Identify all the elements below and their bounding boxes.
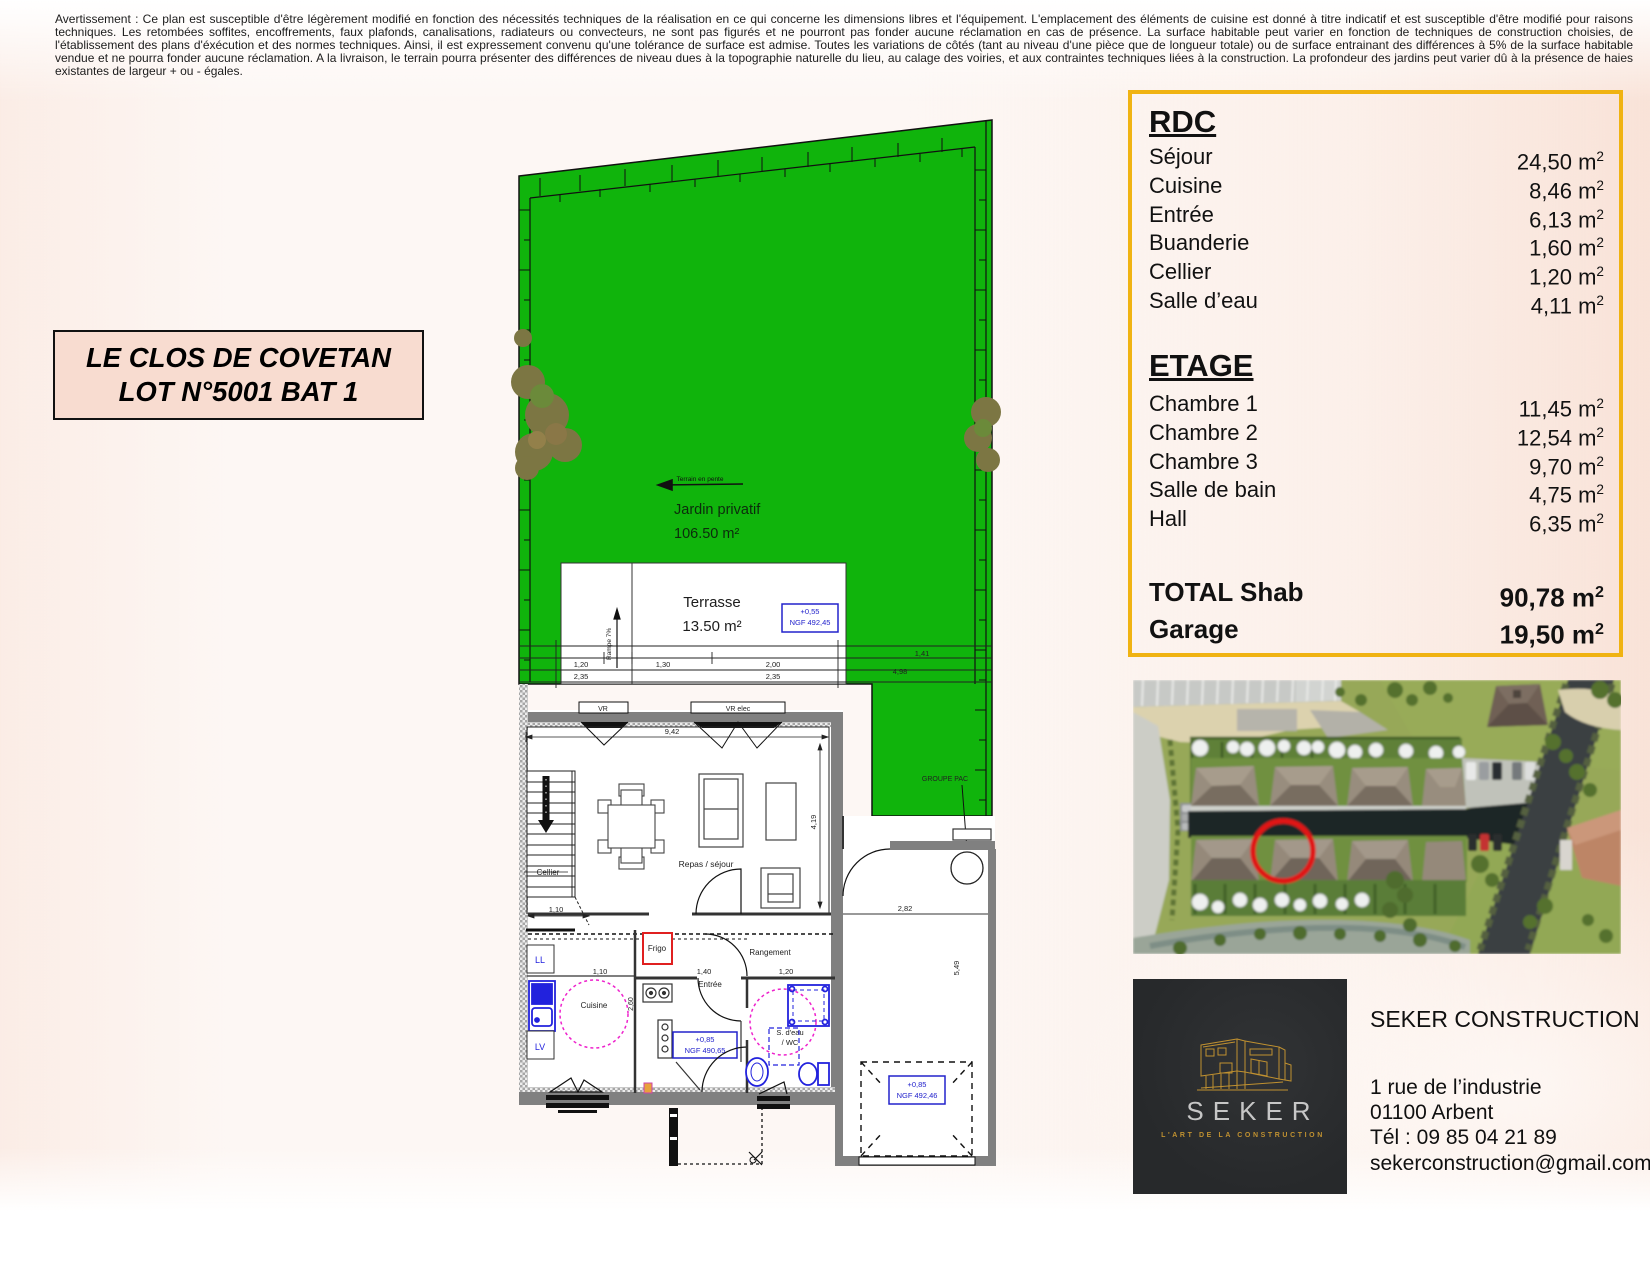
svg-text:LL: LL: [535, 955, 545, 965]
svg-text:Terrain en pente: Terrain en pente: [677, 476, 724, 483]
svg-text:1,40: 1,40: [697, 967, 712, 976]
svg-text:9,42: 9,42: [665, 727, 680, 736]
svg-text:Cuisine: Cuisine: [581, 1001, 608, 1010]
svg-text:4,98: 4,98: [893, 667, 908, 676]
svg-text:GROUPE PAC: GROUPE PAC: [922, 776, 968, 783]
svg-text:Jardin privatif: Jardin privatif: [674, 502, 761, 518]
svg-text:1,30: 1,30: [656, 660, 671, 669]
svg-text:+0,55: +0,55: [801, 607, 820, 616]
svg-text:L'ART DE LA CONSTRUCTION: L'ART DE LA CONSTRUCTION: [1161, 1132, 1325, 1139]
svg-text:5,49: 5,49: [952, 961, 961, 976]
svg-text:Rangement: Rangement: [749, 948, 791, 957]
svg-text:2,35: 2,35: [766, 672, 781, 681]
svg-text:NGF 492,45: NGF 492,45: [790, 618, 831, 627]
svg-text:+0,85: +0,85: [908, 1080, 927, 1089]
svg-text:/ WC: / WC: [782, 1038, 799, 1047]
svg-text:2,00: 2,00: [766, 660, 781, 669]
svg-text:2,35: 2,35: [574, 672, 589, 681]
svg-text:4,19: 4,19: [809, 815, 818, 830]
svg-text:Rampe 7%: Rampe 7%: [606, 628, 613, 660]
svg-text:106.50 m²: 106.50 m²: [674, 526, 739, 542]
svg-text:1,20: 1,20: [574, 660, 589, 669]
svg-text:NGF 490,65: NGF 490,65: [685, 1046, 726, 1055]
svg-text:1,10: 1,10: [549, 905, 564, 914]
svg-text:Entrée: Entrée: [698, 980, 722, 989]
svg-text:+0,85: +0,85: [696, 1035, 715, 1044]
svg-text:VR: VR: [598, 706, 608, 713]
svg-text:13.50 m²: 13.50 m²: [682, 618, 741, 635]
svg-text:SEKER: SEKER: [1186, 1096, 1319, 1126]
svg-text:2,82: 2,82: [898, 904, 913, 913]
svg-text:Repas / séjour: Repas / séjour: [679, 859, 734, 869]
svg-text:VR elec: VR elec: [726, 706, 751, 713]
svg-text:Frigo: Frigo: [648, 944, 667, 953]
svg-text:1,20: 1,20: [779, 967, 794, 976]
svg-text:NGF 492,46: NGF 492,46: [897, 1091, 938, 1100]
svg-text:1,41: 1,41: [915, 649, 930, 658]
svg-text:2,60: 2,60: [628, 997, 635, 1011]
svg-text:LV: LV: [535, 1042, 545, 1052]
svg-text:Cellier: Cellier: [537, 868, 560, 877]
svg-text:Terrasse: Terrasse: [683, 594, 741, 611]
svg-text:1,10: 1,10: [593, 967, 608, 976]
